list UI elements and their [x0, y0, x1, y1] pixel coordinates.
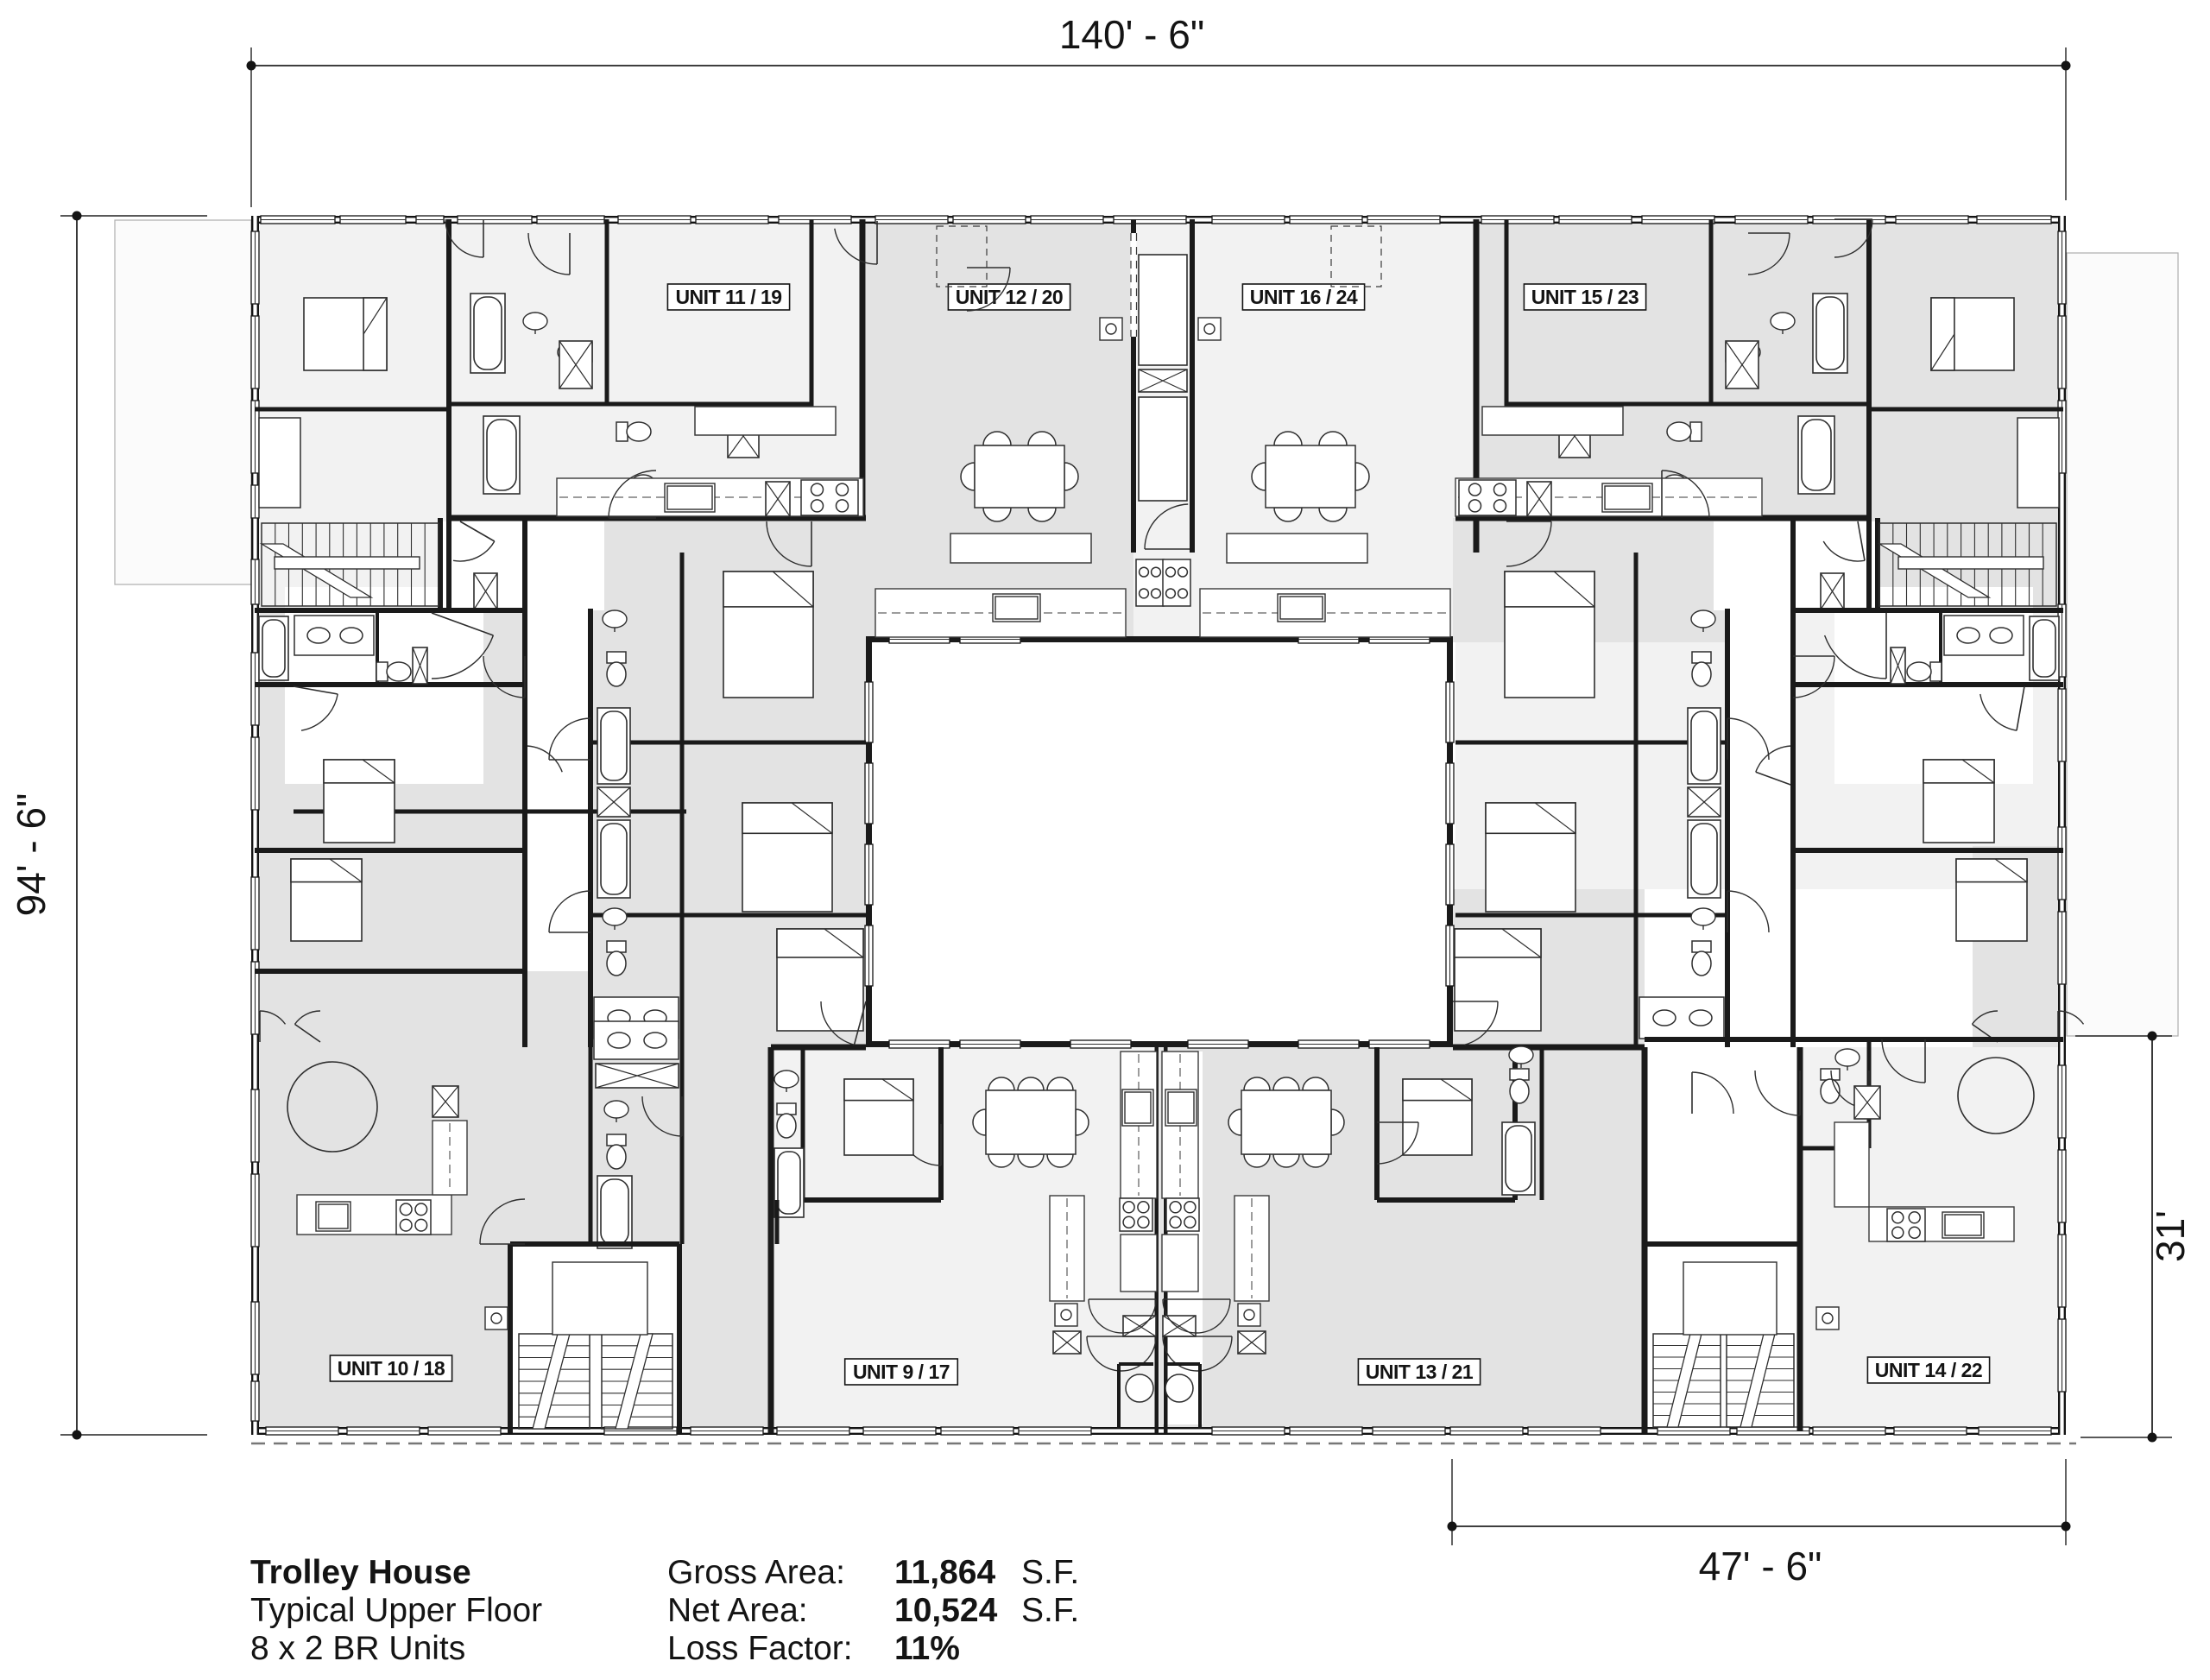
svg-text:11,864: 11,864	[894, 1554, 995, 1591]
svg-text:10,524: 10,524	[894, 1592, 998, 1629]
svg-text:S.F.: S.F.	[1021, 1592, 1079, 1629]
svg-text:UNIT 15 / 23: UNIT 15 / 23	[1531, 286, 1639, 308]
svg-text:Net Area:: Net Area:	[667, 1592, 808, 1629]
svg-text:Loss Factor:: Loss Factor:	[667, 1630, 853, 1667]
svg-text:UNIT 13 / 21: UNIT 13 / 21	[1366, 1361, 1474, 1383]
svg-text:Trolley House: Trolley House	[250, 1554, 471, 1591]
svg-text:UNIT 14 / 22: UNIT 14 / 22	[1875, 1359, 1982, 1381]
svg-text:31': 31'	[2148, 1210, 2193, 1262]
svg-text:UNIT 10 / 18: UNIT 10 / 18	[338, 1357, 445, 1380]
svg-text:UNIT 9 / 17: UNIT 9 / 17	[853, 1361, 950, 1383]
svg-text:UNIT 12 / 20: UNIT 12 / 20	[956, 286, 1063, 308]
svg-text:S.F.: S.F.	[1021, 1554, 1079, 1591]
svg-text:Typical Upper Floor: Typical Upper Floor	[250, 1592, 542, 1629]
svg-text:94' - 6": 94' - 6"	[9, 793, 54, 917]
svg-text:Gross Area:: Gross Area:	[667, 1554, 845, 1591]
svg-text:8 x 2 BR Units: 8 x 2 BR Units	[250, 1630, 465, 1667]
svg-text:47' - 6": 47' - 6"	[1699, 1544, 1822, 1588]
svg-text:11%: 11%	[894, 1630, 960, 1667]
svg-text:UNIT 16 / 24: UNIT 16 / 24	[1250, 286, 1358, 308]
svg-text:140' - 6": 140' - 6"	[1059, 12, 1204, 57]
svg-text:UNIT 11 / 19: UNIT 11 / 19	[675, 286, 781, 308]
